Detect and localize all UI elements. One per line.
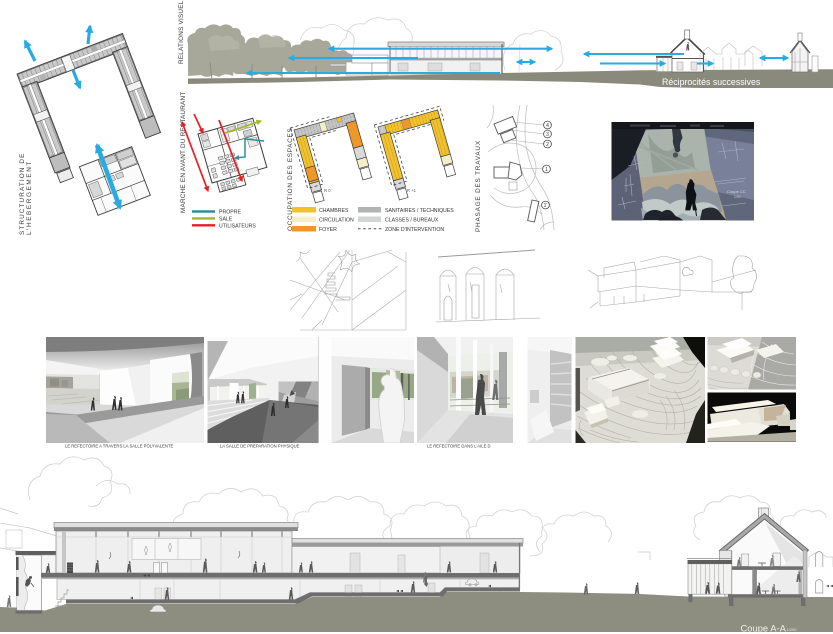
svg-text:2: 2 (546, 142, 549, 148)
svg-text:Réciprocités successives: Réciprocités successives (662, 77, 761, 87)
svg-text:OCCUPATION DES ESPACES: OCCUPATION DES ESPACES (287, 128, 294, 231)
svg-text:1: 1 (545, 167, 548, 173)
svg-text:ZONE D'INTERVENTION: ZONE D'INTERVENTION (385, 227, 444, 233)
svg-text:FOYER: FOYER (319, 227, 337, 233)
svg-text:LE REFECTOIRE DANS L'AILE D: LE REFECTOIRE DANS L'AILE D (427, 444, 491, 449)
svg-text:SALE: SALE (219, 216, 233, 222)
svg-text:RELATIONS VISUELLES: RELATIONS VISUELLES (178, 0, 185, 64)
svg-text:LE REFECTOIRE A TRAVERS LA SAL: LE REFECTOIRE A TRAVERS LA SALLE POLYVAL… (65, 444, 174, 449)
svg-text:CIRCULATION: CIRCULATION (319, 218, 354, 224)
svg-text:CHAMBRES: CHAMBRES (319, 208, 349, 214)
svg-text:Coupe CC: Coupe CC (727, 189, 746, 194)
svg-text:R 0: R 0 (324, 188, 331, 193)
svg-text:PROPRE: PROPRE (219, 210, 241, 216)
svg-text:STRUCTURATION DE: STRUCTURATION DE (19, 153, 26, 235)
svg-text:- 1/200: - 1/200 (784, 627, 797, 632)
svg-text:R +1: R +1 (407, 188, 417, 193)
svg-text:L'HEBERGEMENT: L'HEBERGEMENT (26, 160, 33, 235)
svg-text:Coupe A-A: Coupe A-A (741, 623, 787, 634)
svg-text:UTILISATEURS: UTILISATEURS (219, 223, 256, 229)
svg-text:LA SALLE DE PREPARATION PHYSIQ: LA SALLE DE PREPARATION PHYSIQUE (220, 444, 300, 449)
svg-text:PHASAGE DES TRAVAUX: PHASAGE DES TRAVAUX (475, 140, 482, 232)
svg-text:1': 1' (544, 203, 548, 209)
svg-text:3: 3 (546, 132, 549, 138)
svg-text:1/50: 1/50 (734, 195, 741, 199)
svg-text:CLASSES / BUREAUX: CLASSES / BUREAUX (385, 218, 439, 224)
svg-text:MARCHE EN AVANT DU RESTAURANT: MARCHE EN AVANT DU RESTAURANT (180, 92, 187, 213)
svg-text:SANITAIRES / TECHNIQUES: SANITAIRES / TECHNIQUES (385, 208, 454, 214)
svg-text:4: 4 (546, 123, 549, 129)
